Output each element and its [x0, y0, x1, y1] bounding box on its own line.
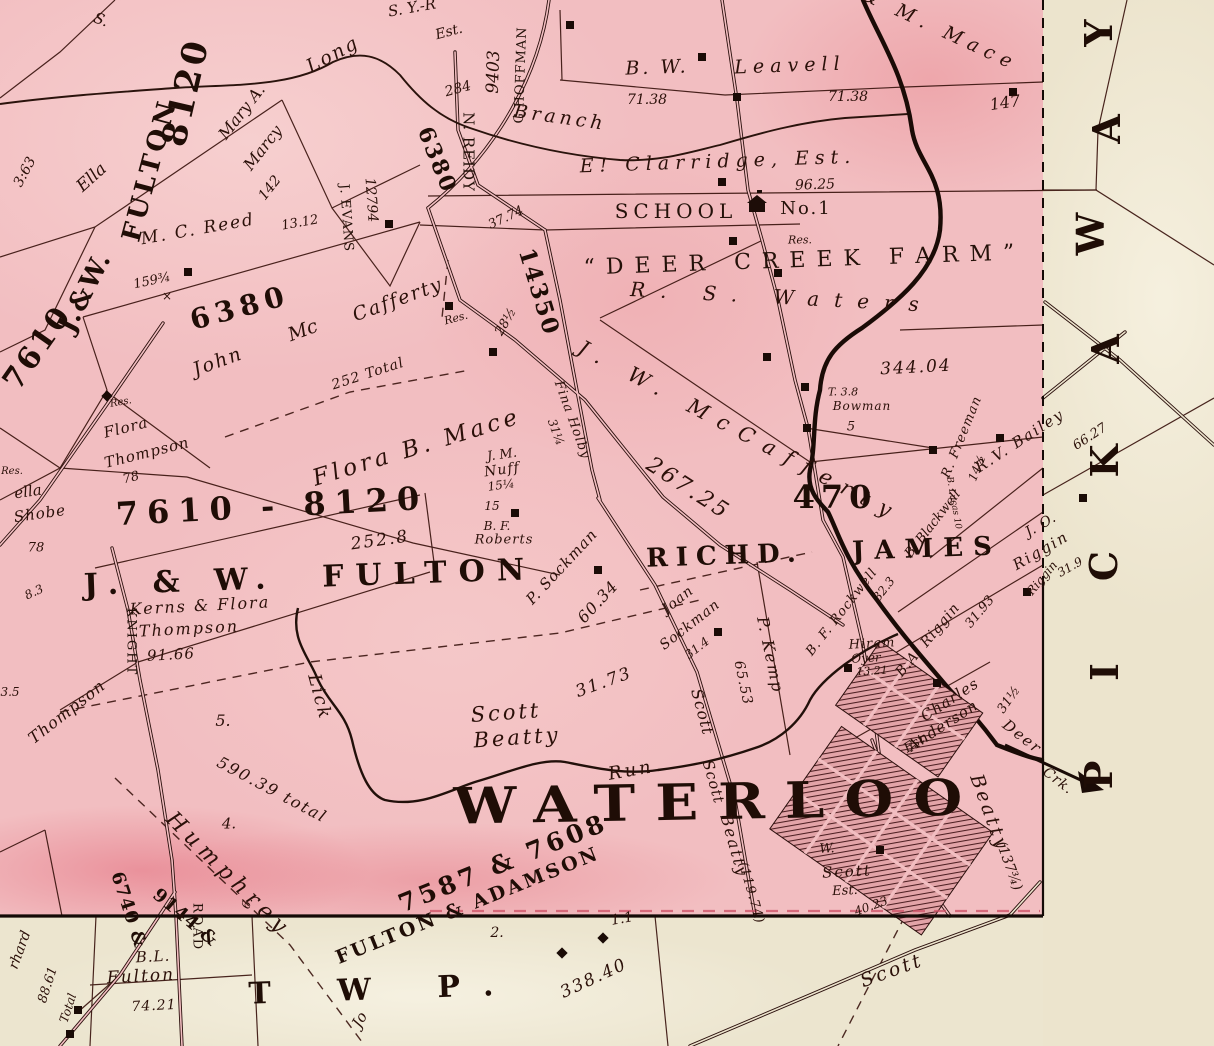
- num-363: 3:63: [11, 155, 38, 189]
- res-shobe: Res.: [1, 467, 23, 477]
- owner-mcreed: M. C. Reed: [140, 212, 256, 249]
- survey-14350: 14350: [515, 246, 563, 339]
- creek-long-label: Long: [304, 33, 363, 76]
- margin-letter-p: P: [1080, 761, 1118, 790]
- farm-name: “ D E E R C R E E K F A R M ”: [583, 242, 1016, 279]
- num-78b: 78: [28, 542, 45, 555]
- township-twp: T W P.: [248, 970, 522, 1010]
- num-35: 3.5: [0, 686, 19, 698]
- survey-9144: 9144 &: [149, 886, 221, 950]
- survey-6380-big: 6380: [187, 281, 293, 334]
- margin-letter-i: I: [1086, 663, 1124, 681]
- owner-leavell: Leavell: [734, 55, 846, 78]
- num-15: 15: [484, 500, 499, 512]
- owner-flora1: Flora: [102, 415, 150, 441]
- num-2: 2.: [490, 926, 503, 940]
- num-3114: 31¼: [546, 417, 566, 446]
- num-26725: 267.25: [642, 454, 734, 524]
- owner-scottbeatty2: Beatty: [473, 724, 561, 751]
- owner-flora2: Thompson: [103, 435, 191, 471]
- owner-jmnuff2: Nuff: [483, 461, 520, 480]
- owner-scott-margin: Scott: [858, 951, 926, 991]
- school-label: SCHOOL: [615, 201, 738, 221]
- num-284: 284: [443, 79, 472, 99]
- num-6553: 65.53: [731, 659, 754, 706]
- creek-branch-label: Branch: [512, 102, 607, 134]
- owner-bowman: Bowman: [833, 400, 892, 412]
- owner-kerns-thompson: Thompson: [139, 618, 240, 639]
- owner-jwfulton-big: J. & W. FULTON: [83, 555, 536, 601]
- owner-evans: J. EVANS: [337, 184, 355, 253]
- num-8861: 88.61: [36, 965, 60, 1004]
- num-34404: 344.04: [880, 358, 952, 379]
- num-7138b: 71.38: [828, 90, 868, 104]
- owner-richd: RICHD.: [646, 540, 805, 571]
- num-3112: 31½: [995, 684, 1022, 715]
- stray-s: S.: [92, 10, 111, 29]
- owner-ella2: ella: [13, 483, 42, 502]
- owner-wscott1: W.: [819, 842, 835, 856]
- owner-kerns: Kerns & Flora: [129, 594, 270, 617]
- owner-oyer: Oyer: [851, 651, 881, 665]
- num-7421: 74.21: [131, 998, 177, 1014]
- num-11: 1.1: [610, 910, 634, 928]
- school-no1: No.1: [780, 200, 831, 218]
- num-total2: Total: [58, 992, 79, 1024]
- num-1321: 13.21: [856, 665, 888, 678]
- owner-bariggin: B.A. Riggin: [893, 601, 962, 680]
- owner-rhard: rhard: [7, 929, 34, 971]
- creek-deer-label: Deer: [1000, 717, 1045, 756]
- num-3774: 37.74: [486, 204, 525, 232]
- num-83: 8.3: [23, 583, 45, 602]
- res-flora: Res.: [109, 396, 132, 410]
- owner-shobe: Shobe: [13, 503, 67, 525]
- num-6034: 60.34: [575, 578, 621, 626]
- creek-lick-label: Lick: [304, 672, 333, 722]
- owner-joan: Joan: [660, 584, 697, 617]
- survey-6380-rot: 6380: [414, 124, 460, 196]
- num-78a: 78: [121, 470, 140, 487]
- owner-clarridge: E! Clarridge, Est.: [579, 148, 856, 177]
- num-252total: 252 Total: [330, 356, 406, 393]
- owner-mc: Mc: [286, 317, 321, 345]
- owner-rswaters: R. S. Waters: [630, 279, 935, 315]
- margin-letter-y: Y: [1080, 19, 1118, 46]
- res-waters: Res.: [788, 235, 812, 246]
- owner-bl: B.L.: [135, 949, 170, 966]
- num-33840: 338.40: [558, 956, 630, 1002]
- num-2812: 28½: [493, 306, 519, 338]
- owner-mmace: & M. Mace: [859, 0, 1021, 75]
- owner-t38: T. 3.8: [828, 387, 858, 398]
- margin-letter-c: C: [1085, 551, 1123, 581]
- num-3173: 31.73: [574, 665, 635, 701]
- num-4: 4.: [222, 817, 236, 832]
- tick-x: ×: [162, 290, 172, 302]
- num-9625: 96.25: [795, 177, 836, 192]
- num-147: 147: [989, 93, 1021, 113]
- survey-6740: 6740 &: [107, 870, 148, 950]
- survey-470: 470: [793, 481, 878, 513]
- survey-9403: 9403: [485, 50, 503, 94]
- margin-letter-w: W: [1072, 213, 1110, 256]
- owner-bfroberts1: B. F.: [484, 520, 511, 532]
- num-5a: 5: [847, 421, 855, 434]
- owner-cafferty: Cafferty: [350, 275, 445, 325]
- owner-jo-clip: Jo: [350, 1010, 371, 1031]
- num-2528: 252.8: [350, 528, 410, 553]
- owner-thompson-diag: Thompson: [26, 677, 108, 746]
- owner-syr: S. Y.-R: [387, 0, 437, 20]
- num-142: 142: [256, 173, 283, 203]
- owner-bfroberts2: Roberts: [475, 534, 534, 547]
- road-scott-v: Scott: [688, 687, 716, 737]
- num-7138a: 71.38: [627, 93, 667, 107]
- num-3193: 31.93: [963, 594, 997, 631]
- owner-pkemp: P. Kemp: [754, 615, 786, 695]
- margin-letter-k: K: [1086, 444, 1124, 477]
- road-knight: KNIGHT: [125, 608, 138, 677]
- owner-wscott2: Scott: [822, 863, 872, 881]
- owner-hiram: Hiram: [848, 636, 895, 651]
- owner-john: John: [191, 344, 246, 379]
- owner-blfulton: Fulton: [107, 967, 176, 988]
- margin-letter-a2: A: [1087, 334, 1125, 363]
- survey-7610-8120: 7610 - 8120: [115, 482, 429, 530]
- road-nreidy: N. REIDY: [461, 112, 476, 192]
- owner-scottbeatty1: Scott: [470, 700, 542, 726]
- map-labels: 8120FULTONJ.&W.7610S.3:63S. Y.-REst.2849…: [0, 0, 1214, 1046]
- num-1312: 13.12: [281, 213, 320, 232]
- num-5b: 5.: [215, 713, 230, 729]
- num-13734: (137¾): [994, 840, 1025, 893]
- survey-12794: 12794: [362, 177, 379, 222]
- margin-letter-a1: A: [1088, 114, 1126, 143]
- owner-ella: Ella: [74, 161, 110, 196]
- owner-wscott3: Est.: [832, 884, 858, 898]
- num-11974: (119.74): [736, 861, 766, 926]
- owner-bw: B. W.: [625, 57, 689, 78]
- num-9166: 91.66: [147, 646, 196, 663]
- plat-map: 8120FULTONJ.&W.7610S.3:63S. Y.-REst.2849…: [0, 0, 1214, 1046]
- owner-rvbailey: R.V. Bailey: [973, 407, 1067, 476]
- survey-7610-rot: 7610: [0, 300, 78, 395]
- res-mccafferty: Res.: [443, 310, 469, 327]
- creek-crk-label: Crk.: [1040, 765, 1076, 797]
- owner-anderson-est: Est.: [902, 731, 930, 756]
- num-314: 31.4: [683, 635, 711, 661]
- est-top: Est.: [434, 22, 464, 43]
- owner-fulton-rot: FULTON: [118, 96, 181, 245]
- num-1514: 15¼: [487, 477, 515, 493]
- num-4023: 40.23: [853, 894, 889, 917]
- owner-marcy: Marcy: [241, 123, 285, 173]
